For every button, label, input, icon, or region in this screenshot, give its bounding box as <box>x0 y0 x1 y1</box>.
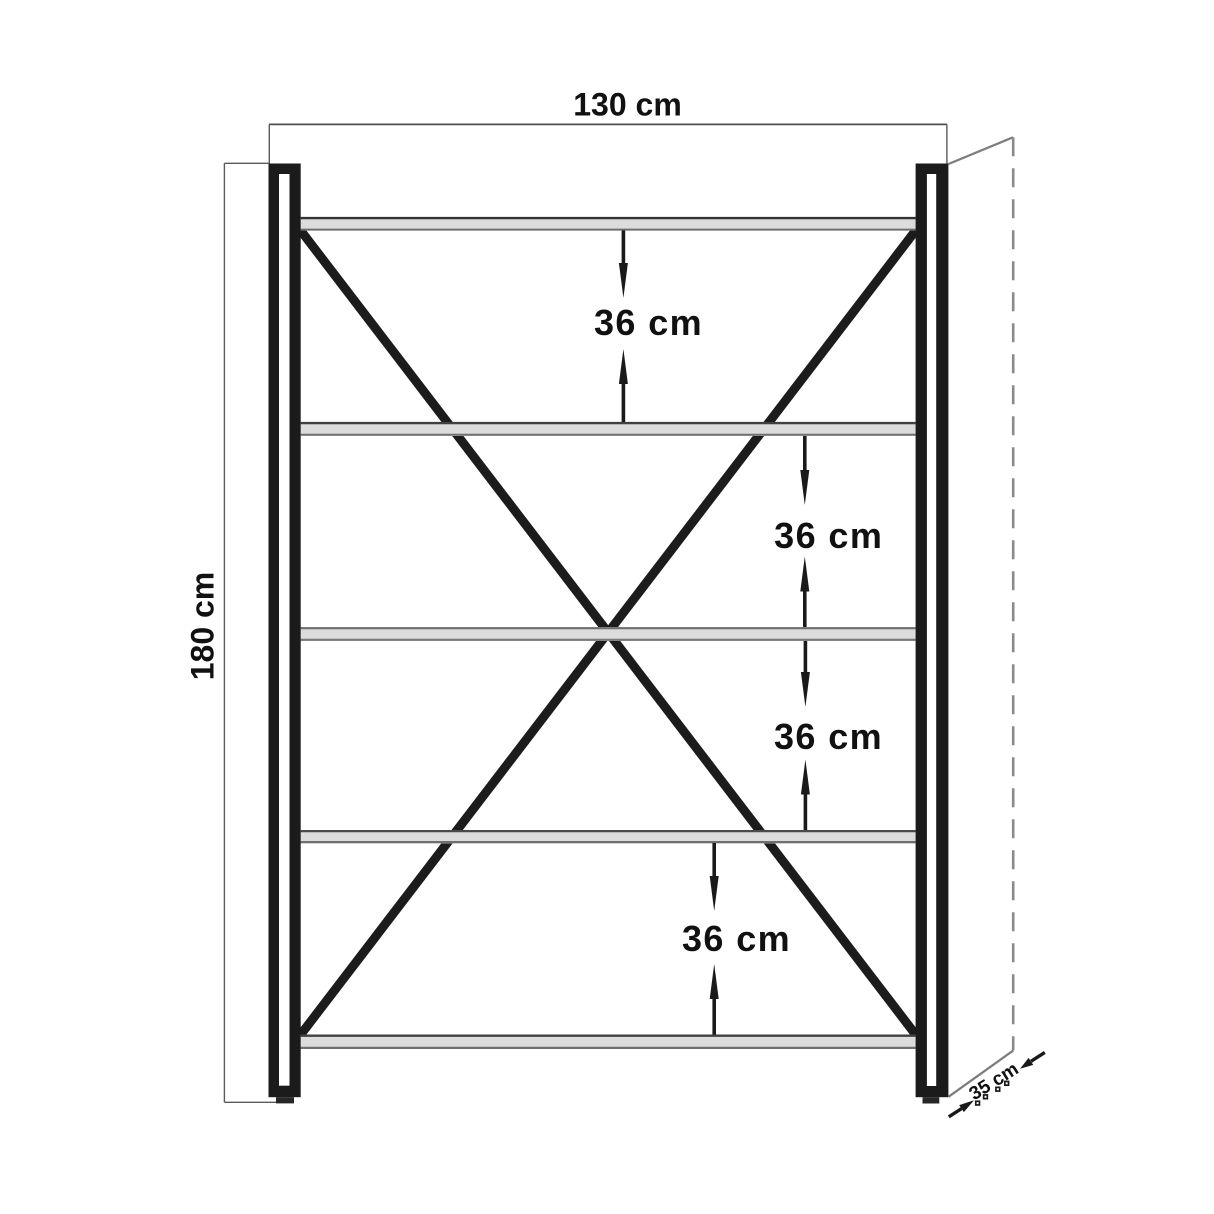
svg-text:130 cm: 130 cm <box>573 87 682 123</box>
svg-text:36 cm: 36 cm <box>594 302 703 343</box>
svg-text:36 cm: 36 cm <box>774 515 883 556</box>
svg-text:36 cm: 36 cm <box>774 716 883 757</box>
svg-text:180 cm: 180 cm <box>185 572 221 681</box>
svg-text:36 cm: 36 cm <box>682 918 791 959</box>
